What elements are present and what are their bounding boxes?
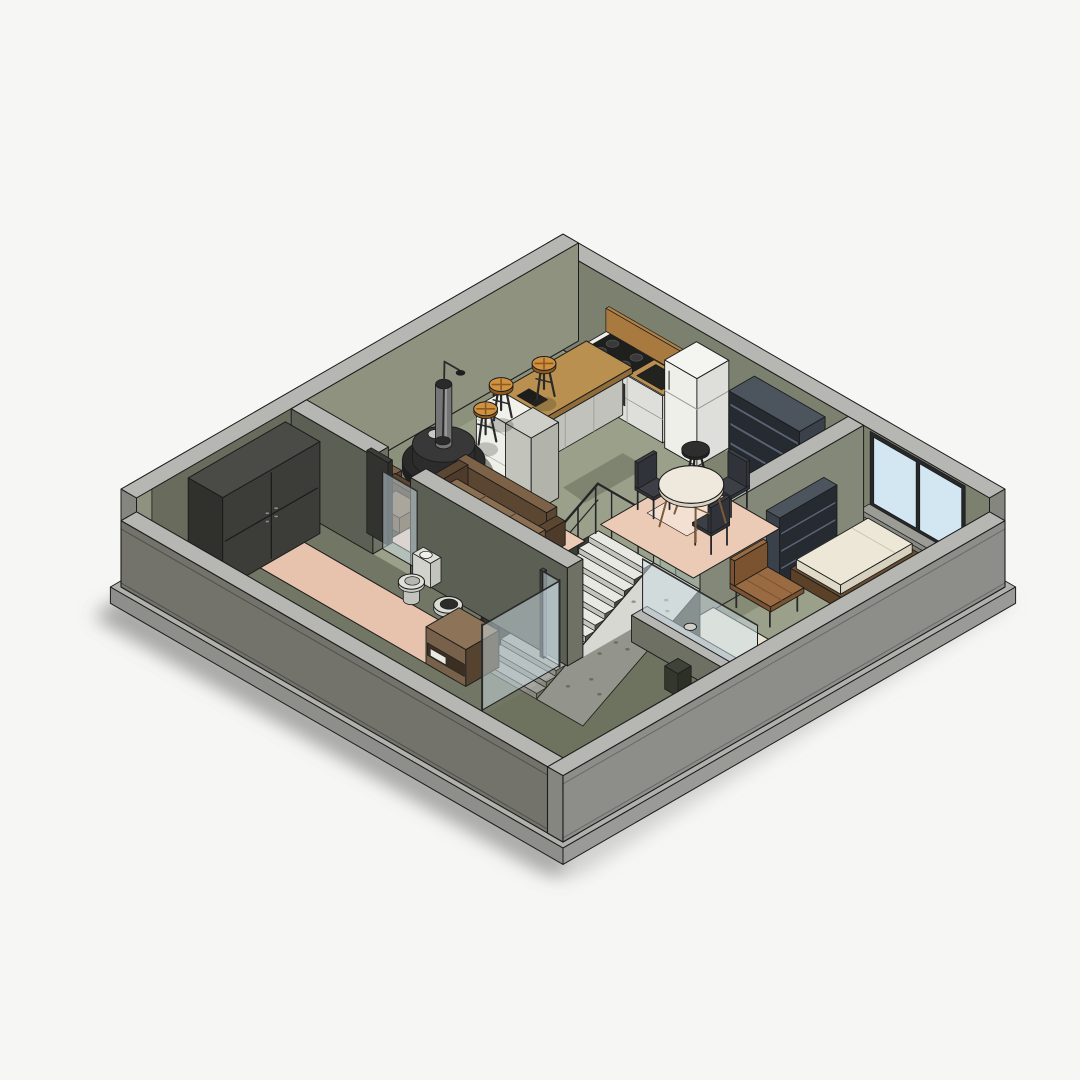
viewport: Isometric 3D apartment floor plan sectio… bbox=[0, 0, 1080, 1080]
floor-plan-3d-view bbox=[0, 0, 1080, 1080]
